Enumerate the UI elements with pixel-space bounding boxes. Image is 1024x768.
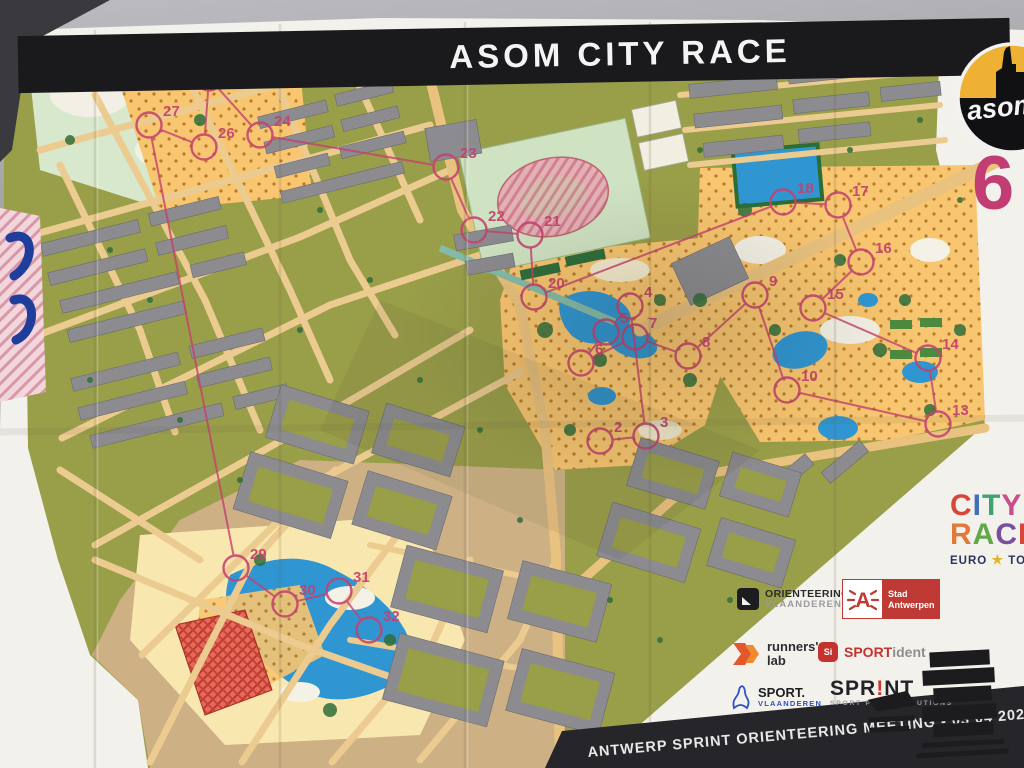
sport-vlaanderen-lion-icon <box>730 684 752 710</box>
sponsor-sport-vlaanderen: SPORT. VLAANDEREN <box>730 684 822 710</box>
star-icon: ★ <box>991 552 1004 567</box>
sportident-icon: Si <box>818 642 838 662</box>
orienteering-vlaanderen-icon <box>737 588 759 610</box>
asom-logo-text: asom <box>965 89 1024 126</box>
sponsor-stad-antwerpen: A Stad Antwerpen <box>842 579 940 619</box>
city-race-letter: C <box>995 518 1018 551</box>
control-number: 29 <box>250 546 267 563</box>
svg-text:Stad: Stad <box>888 589 908 599</box>
control-number: 17 <box>852 183 869 200</box>
control-number: 27 <box>163 103 180 120</box>
control-number: 31 <box>353 569 370 586</box>
sponsor-runners-lab: runners' lab <box>733 640 819 667</box>
control-number: 24 <box>274 113 291 130</box>
control-number: 18 <box>797 180 814 197</box>
sponsor-orienteering-vlaanderen: ORIENTEERING VLAANDEREN <box>737 588 850 610</box>
svg-text:Antwerpen: Antwerpen <box>888 600 935 610</box>
control-number: 26 <box>218 125 235 142</box>
euro-tour-label: EURO ★ TOUR <box>950 552 1024 568</box>
control-number: 30 <box>299 582 316 599</box>
city-race-letter: A <box>973 518 996 551</box>
city-race-euro-tour-logo: CITY RACE EURO ★ TOUR <box>950 492 1024 568</box>
city-race-logo-line2: RACE <box>950 521 1024 550</box>
runners-lab-chevron-icon <box>733 643 761 665</box>
control-number: 32 <box>383 608 400 625</box>
photo-of-orienteering-map: { "banner": { "title": "ASOM CITY RACE" … <box>0 0 1024 768</box>
city-race-letter: R <box>950 518 973 551</box>
antwerp-skyline-icon <box>866 644 1016 767</box>
event-title: ASOM CITY RACE <box>449 31 791 75</box>
city-race-logo-line1: CITY <box>950 492 1024 521</box>
city-race-letter: E <box>1018 518 1024 551</box>
control-number: 14 <box>942 336 959 353</box>
control-number: 23 <box>460 145 477 162</box>
antwerp-a-letter: A <box>855 589 870 612</box>
left-margin-map-fragment <box>0 208 46 402</box>
asom-logo: asom <box>950 38 1024 158</box>
